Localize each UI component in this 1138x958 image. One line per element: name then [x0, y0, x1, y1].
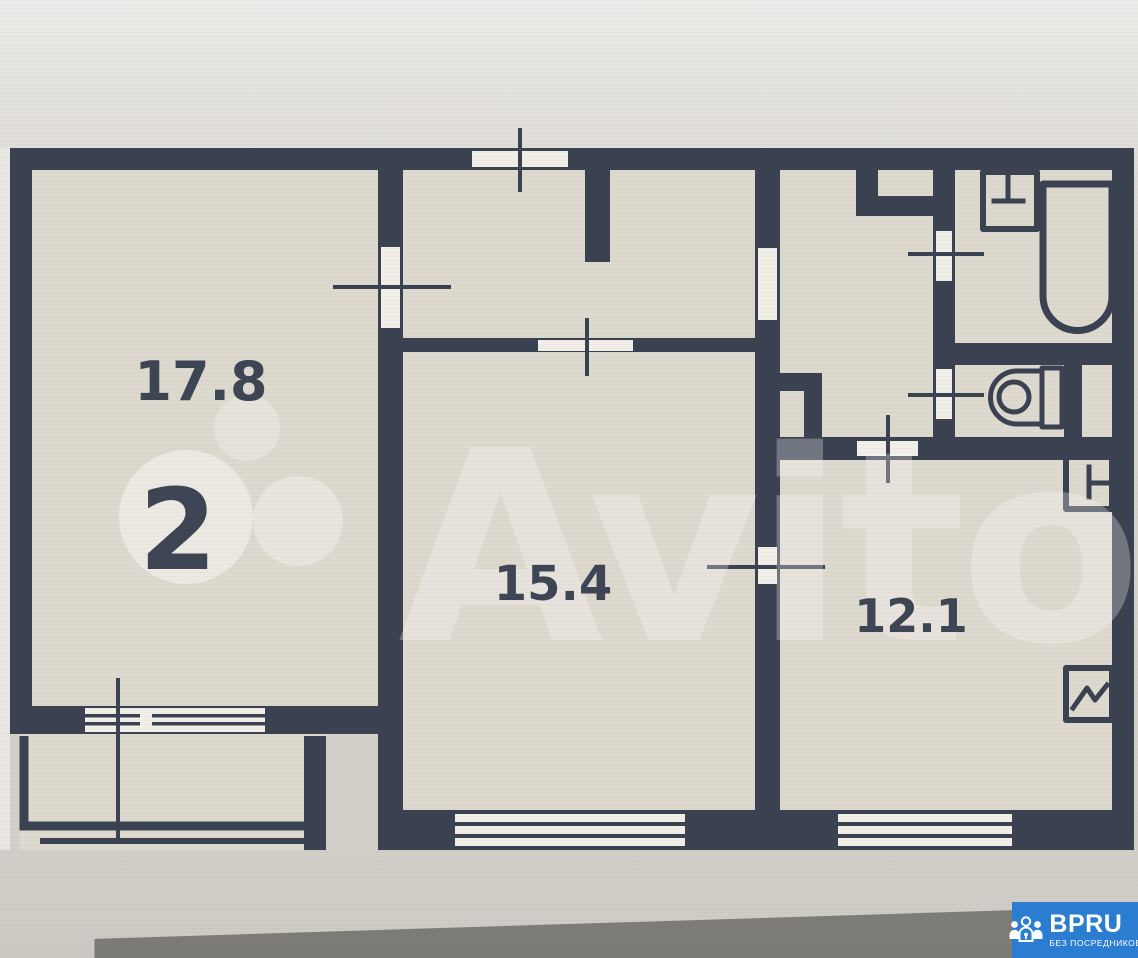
door-opening	[758, 248, 777, 320]
axis-tick	[908, 252, 984, 256]
axis-tick	[333, 285, 451, 289]
window-symbol	[455, 814, 685, 846]
watermark-brand-text: Avito	[398, 395, 1136, 703]
axis-tick	[518, 128, 522, 192]
logo-title: BPRU	[1049, 912, 1122, 937]
axis-tick	[585, 318, 589, 376]
floorplan-photo: Avito 17.8 2 15.4 12.1 BPRU БЕЗ ПОСРЕДНИ…	[0, 0, 1138, 958]
people-lock-icon	[1008, 915, 1044, 945]
floorplan-drawing: Avito 17.8 2 15.4 12.1	[0, 0, 1138, 958]
room-area-label-17-8: 17.8	[134, 350, 267, 413]
room-count-badge: 2	[139, 466, 217, 596]
watermark-dot	[253, 476, 343, 566]
logo-subtitle: БЕЗ ПОСРЕДНИКОВ	[1049, 939, 1138, 948]
window-symbol	[85, 708, 265, 732]
window-symbol	[838, 814, 1012, 846]
room-area-label-15-4: 15.4	[494, 556, 612, 612]
axis-tick	[116, 678, 120, 838]
bpru-logo: BPRU БЕЗ ПОСРЕДНИКОВ	[1012, 902, 1138, 958]
photo-edge	[0, 148, 10, 850]
room-area-label-12-1: 12.1	[854, 589, 968, 643]
